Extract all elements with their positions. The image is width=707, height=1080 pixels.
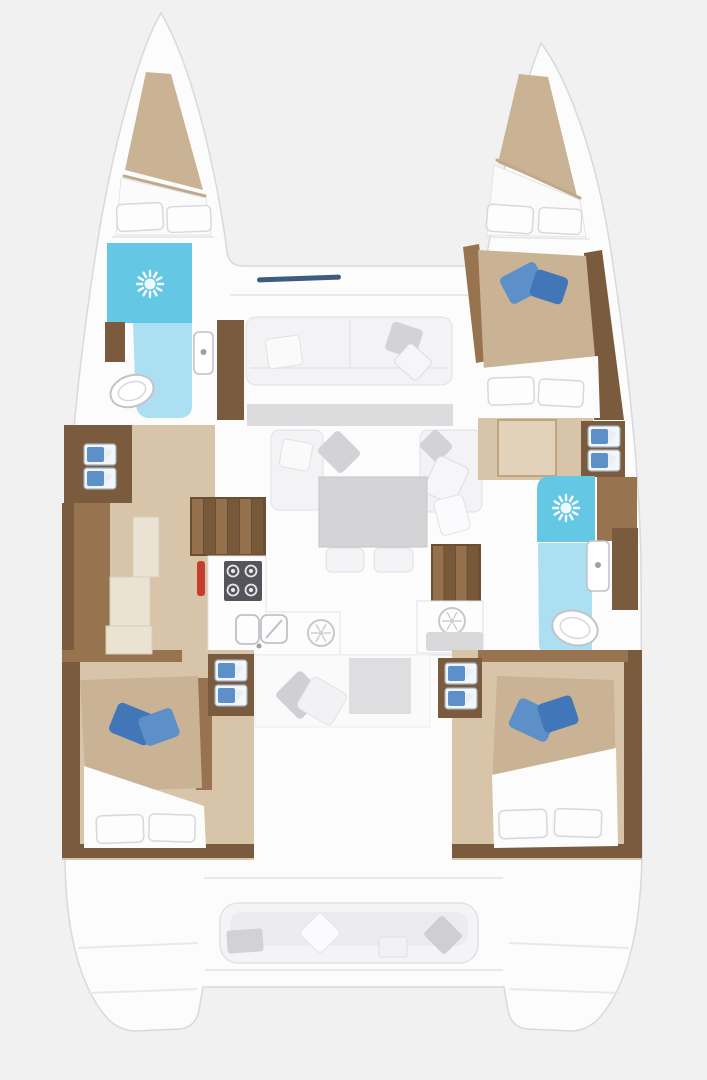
- sideboard: [247, 404, 453, 426]
- dresser-drawer: [215, 660, 247, 681]
- dresser-drawer: [588, 426, 620, 447]
- salon-stool: [326, 548, 364, 572]
- dinette-pillow: [279, 439, 313, 472]
- nav-seat: [426, 632, 483, 651]
- toilet-flush: [201, 349, 207, 355]
- pillow: [488, 377, 535, 406]
- aft-lounge: [255, 655, 430, 727]
- port-aft-cabin: [62, 626, 254, 860]
- catamaran-floorplan: [0, 0, 707, 1080]
- starboard-aft-cabin: [438, 650, 642, 860]
- cabin-frame-top: [478, 650, 628, 662]
- sliding-door: [349, 658, 411, 714]
- port-wardrobe-edge: [62, 503, 74, 660]
- pillow: [554, 808, 602, 837]
- dresser-drawer: [445, 663, 477, 684]
- pillow: [96, 814, 144, 843]
- pillow: [486, 204, 534, 234]
- companionway-stairs-port: [190, 497, 266, 556]
- pillow: [149, 814, 196, 843]
- cockpit: [220, 903, 478, 963]
- dresser-drawer: [445, 688, 477, 709]
- pillow: [538, 379, 584, 407]
- nav-dial-icon: [439, 608, 465, 634]
- head-cabinet-right: [612, 528, 638, 610]
- nav-station: [417, 601, 483, 653]
- cabin-frame-left: [62, 650, 80, 858]
- dresser-drawer: [84, 444, 116, 465]
- cockpit-pillow: [226, 928, 264, 953]
- head-wardrobe-right: [217, 320, 244, 420]
- pillow: [167, 205, 212, 232]
- dresser-drawer: [215, 685, 247, 706]
- galley-vent-icon: [308, 620, 334, 646]
- head-wardrobe-left: [105, 322, 125, 362]
- cockpit-pillow: [379, 937, 407, 957]
- salon-stool: [374, 548, 413, 572]
- cabin-door: [498, 420, 556, 476]
- pillow: [499, 809, 548, 839]
- pillow: [116, 202, 163, 231]
- floorplan-canvas: [0, 0, 707, 1080]
- pillow: [538, 207, 582, 234]
- starboard-corridor: [478, 418, 625, 480]
- cream-panel: [106, 626, 152, 654]
- faucet: [257, 644, 262, 649]
- cabin-frame-right: [624, 650, 642, 858]
- companionway-stairs-starboard: [431, 544, 481, 604]
- salon-table: [319, 477, 427, 547]
- fire-extinguisher: [197, 561, 205, 596]
- sofa-pillow: [265, 335, 303, 369]
- dresser-drawer: [588, 450, 620, 471]
- toilet-flush: [595, 562, 601, 568]
- galley-sink-left: [236, 615, 259, 644]
- dresser-drawer: [84, 468, 116, 489]
- port-bench-small: [133, 517, 159, 577]
